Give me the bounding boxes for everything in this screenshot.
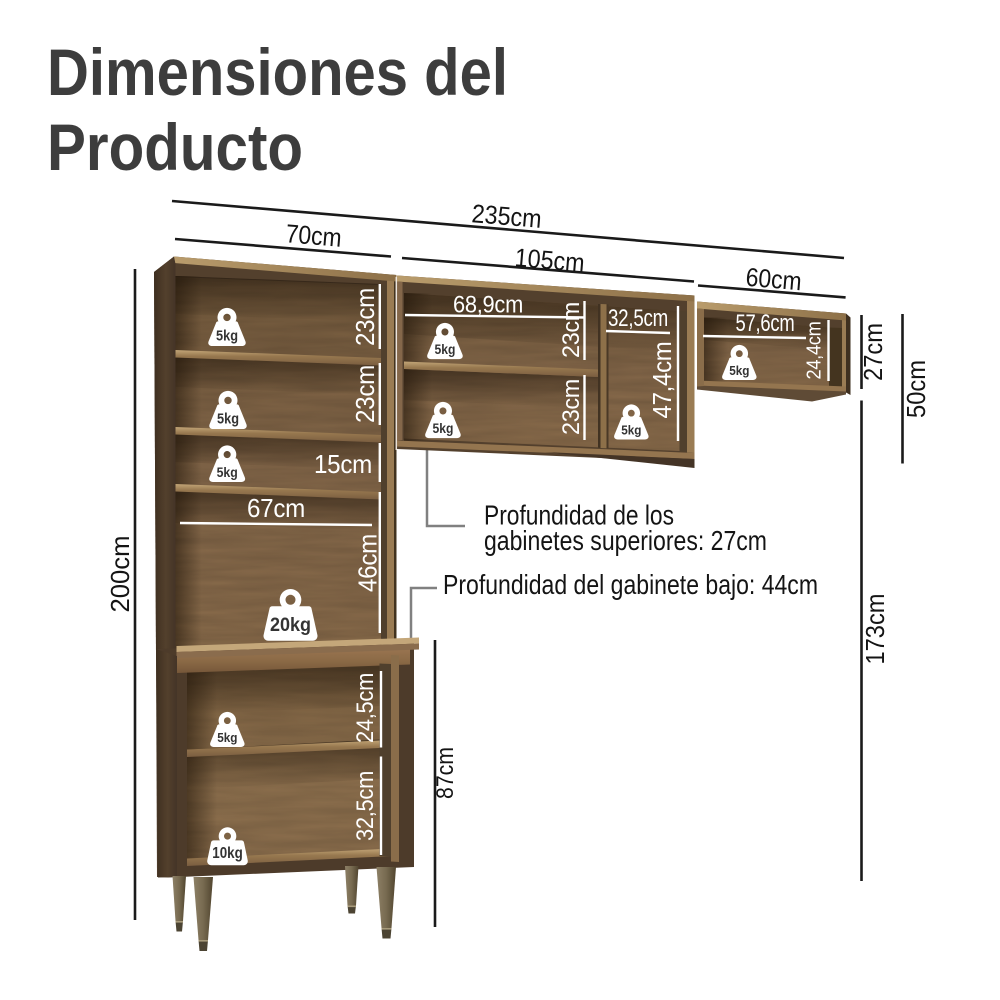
svg-text:24,5cm: 24,5cm [352,673,379,743]
svg-text:27cm: 27cm [858,323,888,381]
svg-text:23cm: 23cm [350,365,380,423]
svg-text:Dimensiones del: Dimensiones del [47,35,508,109]
svg-text:5kg: 5kg [216,329,238,345]
svg-text:23cm: 23cm [558,302,585,358]
svg-text:20kg: 20kg [270,615,311,636]
svg-text:5kg: 5kg [729,363,749,378]
svg-text:32,5cm: 32,5cm [608,305,668,332]
svg-text:50cm: 50cm [901,360,931,418]
svg-text:68,9cm: 68,9cm [453,292,523,319]
svg-text:24,4cm: 24,4cm [804,322,826,380]
svg-text:Producto: Producto [47,110,303,184]
svg-text:200cm: 200cm [105,536,135,613]
svg-text:105cm: 105cm [514,242,586,278]
svg-text:10kg: 10kg [212,845,243,862]
svg-text:32,5cm: 32,5cm [352,771,379,841]
svg-text:5kg: 5kg [217,730,237,745]
svg-text:gabinetes superiores: 27cm: gabinetes superiores: 27cm [484,525,767,556]
svg-text:5kg: 5kg [435,342,456,357]
svg-text:23cm: 23cm [350,288,380,346]
svg-text:15cm: 15cm [314,449,372,479]
svg-text:67cm: 67cm [247,493,305,523]
svg-text:5kg: 5kg [621,422,641,437]
svg-text:70cm: 70cm [285,218,343,253]
svg-text:47,4cm: 47,4cm [647,342,677,419]
svg-text:5kg: 5kg [433,421,454,436]
svg-text:5kg: 5kg [217,412,239,428]
svg-text:57,6cm: 57,6cm [736,310,795,337]
svg-text:Profundidad del gabinete bajo:: Profundidad del gabinete bajo: 44cm [443,569,818,600]
svg-text:60cm: 60cm [745,262,803,297]
svg-text:173cm: 173cm [860,594,890,665]
svg-text:23cm: 23cm [558,379,585,435]
svg-text:5kg: 5kg [217,464,238,480]
svg-text:87cm: 87cm [432,747,459,799]
svg-text:46cm: 46cm [353,534,383,592]
svg-text:235cm: 235cm [471,198,543,234]
